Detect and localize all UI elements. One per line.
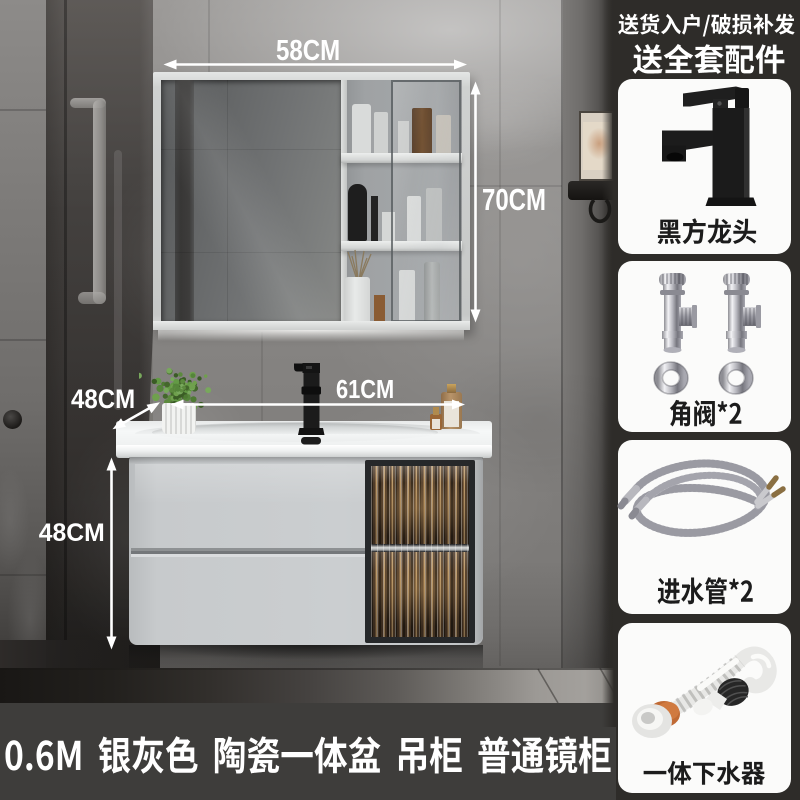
- svg-text:48CM: 48CM: [71, 385, 135, 415]
- svg-text:61CM: 61CM: [336, 375, 394, 404]
- svg-text:48CM: 48CM: [39, 519, 105, 547]
- svg-text:70CM: 70CM: [482, 182, 546, 217]
- svg-text:58CM: 58CM: [276, 34, 340, 67]
